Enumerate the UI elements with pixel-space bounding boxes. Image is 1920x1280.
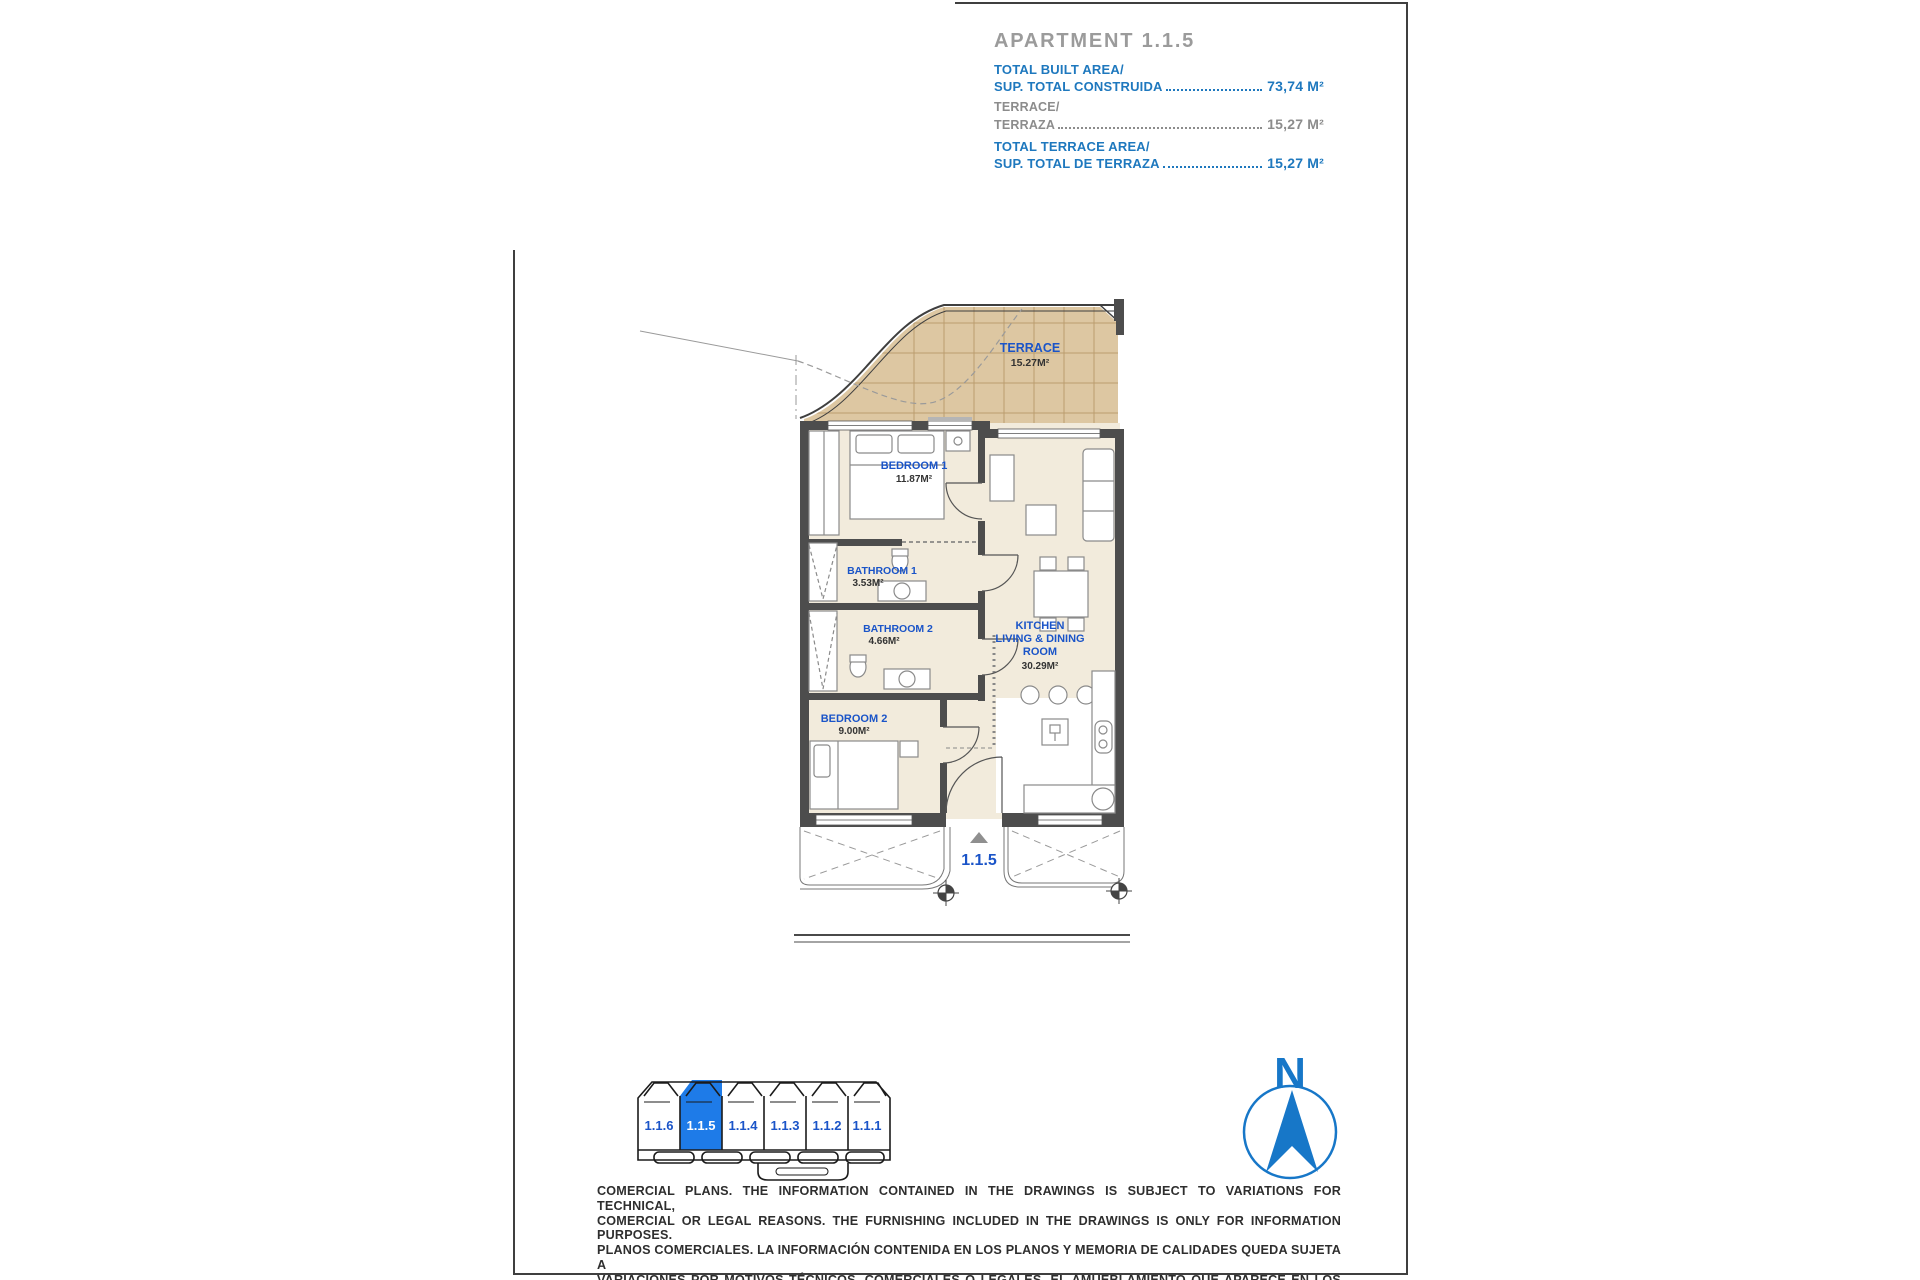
plan-sheet: APARTMENT 1.1.5 TOTAL BUILT AREA/ SUP. T… (0, 0, 1920, 1280)
keyplan-unit-115: 1.1.5 (687, 1118, 716, 1133)
area-label-es: TERRAZA (994, 117, 1055, 134)
terrace-label: TERRACE (1000, 341, 1060, 355)
sheet-border-top (955, 2, 1408, 4)
sheet-border-left (513, 250, 515, 1273)
disclaimer: COMERCIAL PLANS. THE INFORMATION CONTAIN… (597, 1184, 1341, 1280)
bedroom2-area: 9.00M² (838, 726, 870, 737)
entrance-marker: 1.1.5 (961, 832, 997, 869)
chair (1068, 557, 1084, 570)
entrance-unit-label: 1.1.5 (961, 852, 997, 869)
area-label-es: SUP. TOTAL CONSTRUIDA (994, 78, 1163, 95)
area-label-es: SUP. TOTAL DE TERRAZA (994, 155, 1160, 172)
terrace-area: 15.27M² (1011, 357, 1050, 369)
area-value: 73,74 M² (1267, 78, 1324, 95)
area-row-total-terrace: TOTAL TERRACE AREA/ SUP. TOTAL DE TERRAZ… (994, 138, 1324, 172)
kitchen-label-2: LIVING & DINING (995, 633, 1084, 645)
north-arrow-icon (1266, 1090, 1318, 1172)
bar-stool (1021, 686, 1039, 704)
neighbor-boundary-lines (640, 331, 798, 419)
kitchen-label-1: KITCHEN (1016, 620, 1065, 632)
bedroom2-label: BEDROOM 2 (821, 713, 888, 725)
bar-stool (1049, 686, 1067, 704)
keyplan-unit-113: 1.1.3 (771, 1118, 800, 1133)
disclaimer-line: COMERCIAL PLANS. THE INFORMATION CONTAIN… (597, 1184, 1341, 1214)
north-label: N (1274, 1049, 1306, 1098)
disclaimer-line: COMERCIAL OR LEGAL REASONS. THE FURNISHI… (597, 1214, 1341, 1244)
kitchen-label-3: ROOM (1023, 646, 1057, 658)
north-compass: N (1240, 1044, 1340, 1184)
area-label-en: TOTAL BUILT AREA/ (994, 61, 1324, 78)
keyplan-unit-114: 1.1.4 (729, 1118, 759, 1133)
keyplan-unit-111: 1.1.1 (853, 1118, 882, 1133)
wardrobe-bathroom1 (809, 543, 837, 601)
tv-unit (990, 455, 1014, 501)
dot-leader (1163, 165, 1262, 168)
survey-marker (1106, 878, 1132, 904)
terrace-zone: TERRACE 15.27M² (798, 299, 1124, 428)
keyplan-unit-112: 1.1.2 (813, 1118, 842, 1133)
area-label-en: TOTAL TERRACE AREA/ (994, 138, 1324, 155)
dot-leader (1166, 88, 1262, 91)
patio-left (800, 827, 950, 889)
area-label-en: TERRACE/ (994, 99, 1324, 116)
area-row-total-built: TOTAL BUILT AREA/ SUP. TOTAL CONSTRUIDA … (994, 61, 1324, 95)
bedroom1-area: 11.87M² (896, 474, 933, 485)
floor-plan: TERRACE 15.27M² (624, 243, 1142, 951)
sheet-border-right (1406, 2, 1408, 1275)
wardrobe-bathroom2 (809, 611, 837, 691)
area-value: 15,27 M² (1267, 155, 1324, 172)
keyplan-unit-116: 1.1.6 (645, 1118, 674, 1133)
area-row-terrace: TERRACE/ TERRAZA 15,27 M² (994, 99, 1324, 134)
side-table (1026, 505, 1056, 535)
kitchen-area: 30.29M² (1022, 661, 1059, 672)
area-value: 15,27 M² (1267, 116, 1324, 133)
bathroom2-area: 4.66M² (868, 636, 900, 647)
dot-leader (1058, 126, 1262, 129)
dining-table (1034, 571, 1088, 617)
chair (1040, 557, 1056, 570)
bathroom2-label: BATHROOM 2 (863, 623, 933, 635)
bathroom1-area: 3.53M² (852, 578, 884, 589)
title-block: APARTMENT 1.1.5 TOTAL BUILT AREA/ SUP. T… (994, 30, 1324, 176)
bathroom1-label: BATHROOM 1 (847, 565, 917, 577)
survey-marker (933, 880, 959, 906)
patio-right (1004, 827, 1124, 887)
disclaimer-line: VARIACIONES POR MOTIVOS TÉCNICOS, COMERC… (597, 1273, 1341, 1280)
chair (1068, 618, 1084, 631)
sofa (1083, 449, 1114, 541)
nightstand (900, 741, 918, 757)
disclaimer-line: PLANOS COMERCIALES. LA INFORMACIÓN CONTE… (597, 1243, 1341, 1273)
page-title: APARTMENT 1.1.5 (994, 30, 1324, 53)
bedroom1-label: BEDROOM 1 (881, 460, 948, 472)
kitchen-sink-round (1092, 788, 1114, 810)
building-key-plan: 1.1.6 1.1.5 1.1.4 1.1.3 1.1.2 1.1.1 (618, 1072, 908, 1184)
